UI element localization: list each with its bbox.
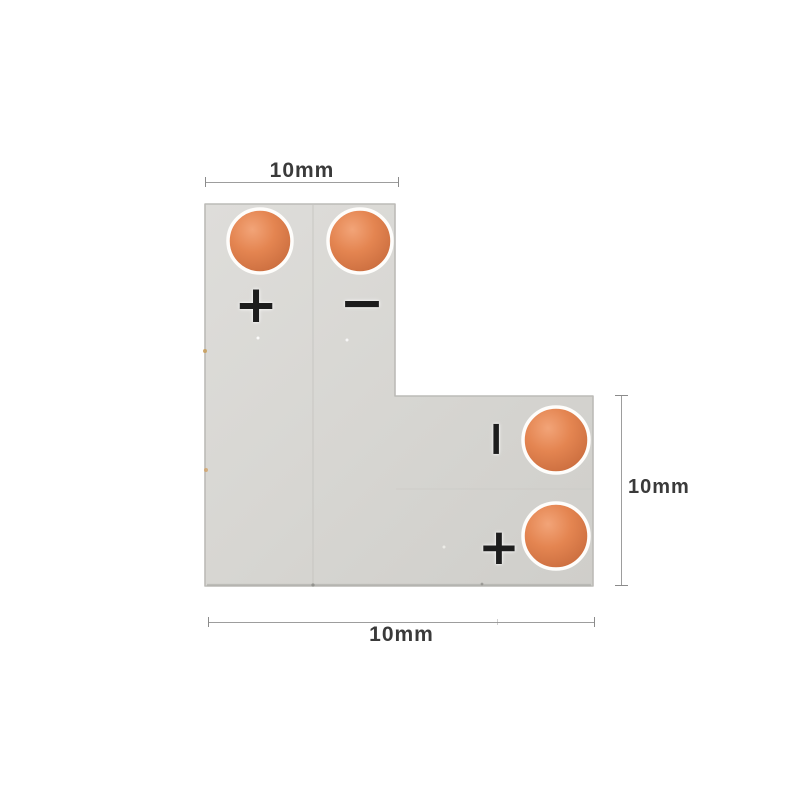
- pcb-connector-graphic: [0, 0, 800, 800]
- speck: [311, 583, 314, 586]
- dimension-line: [205, 182, 399, 183]
- speck: [346, 339, 349, 342]
- dimension-label-top: 10mm: [205, 160, 399, 181]
- solder-pad-top-right: [328, 209, 392, 273]
- solder-pad-right-bottom: [523, 503, 589, 569]
- speck: [481, 583, 484, 586]
- speck: [203, 349, 207, 353]
- speck: [443, 546, 446, 549]
- dimension-tick: [615, 585, 628, 586]
- solder-pad-right-top: [523, 407, 589, 473]
- dimension-tick: [615, 395, 628, 396]
- dimension-label-right: 10mm: [628, 477, 690, 497]
- dimension-line: [621, 395, 622, 586]
- solder-pad-top-left: [228, 209, 292, 273]
- dimension-label-bottom: 10mm: [208, 624, 595, 645]
- speck: [204, 468, 208, 472]
- speck: [257, 337, 260, 340]
- product-dimension-diagram: + − − + 10mm 10mm 10mm: [0, 0, 800, 800]
